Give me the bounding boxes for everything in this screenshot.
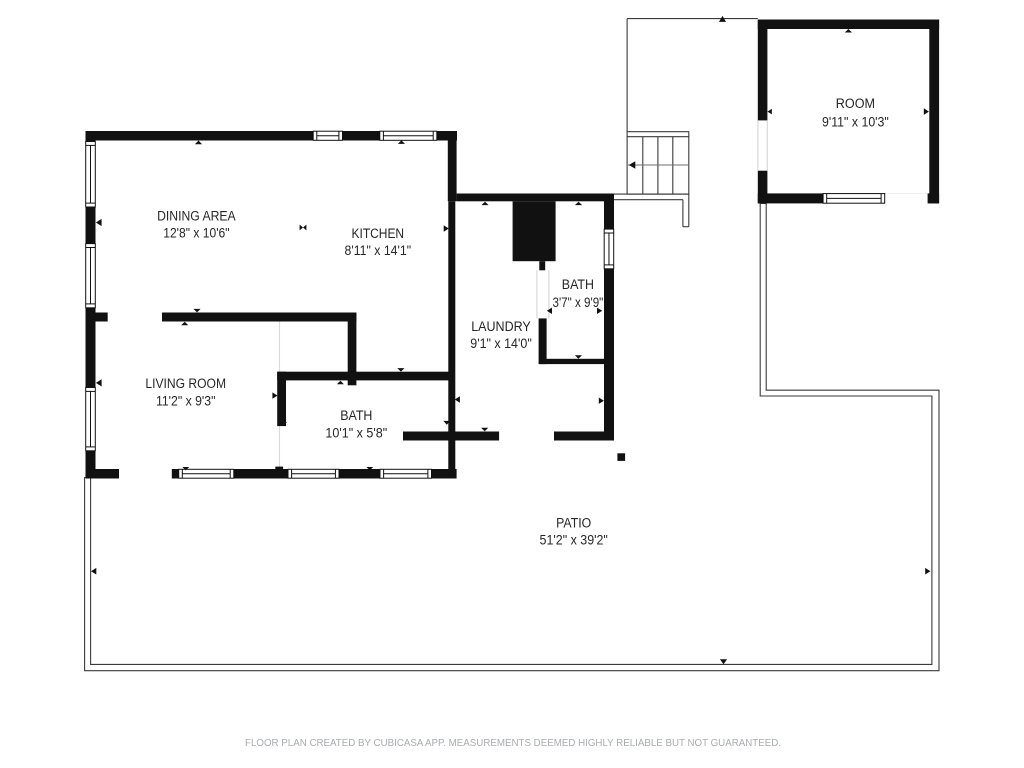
svg-text:LAUNDRY: LAUNDRY [471,319,531,334]
svg-text:PATIO: PATIO [556,515,591,530]
svg-text:DINING AREA: DINING AREA [157,208,236,223]
svg-text:ROOM: ROOM [836,96,875,111]
svg-text:10'1" x 5'8": 10'1" x 5'8" [325,425,387,440]
svg-text:8'11" x 14'1": 8'11" x 14'1" [345,243,412,258]
svg-text:BATH: BATH [340,408,372,423]
svg-text:BATH: BATH [562,277,594,292]
svg-text:LIVING ROOM: LIVING ROOM [145,376,226,391]
svg-text:12'8" x 10'6": 12'8" x 10'6" [163,226,229,241]
svg-text:KITCHEN: KITCHEN [352,226,405,241]
svg-text:51'2" x 39'2": 51'2" x 39'2" [540,533,608,548]
svg-text:FLOOR PLAN CREATED BY CUBICASA: FLOOR PLAN CREATED BY CUBICASA APP. MEAS… [245,738,781,749]
svg-text:3'7" x 9'9": 3'7" x 9'9" [553,295,604,310]
svg-text:11'2" x 9'3": 11'2" x 9'3" [156,393,216,408]
svg-text:9'11" x 10'3": 9'11" x 10'3" [822,114,889,129]
svg-text:9'1" x 14'0": 9'1" x 14'0" [470,336,532,351]
